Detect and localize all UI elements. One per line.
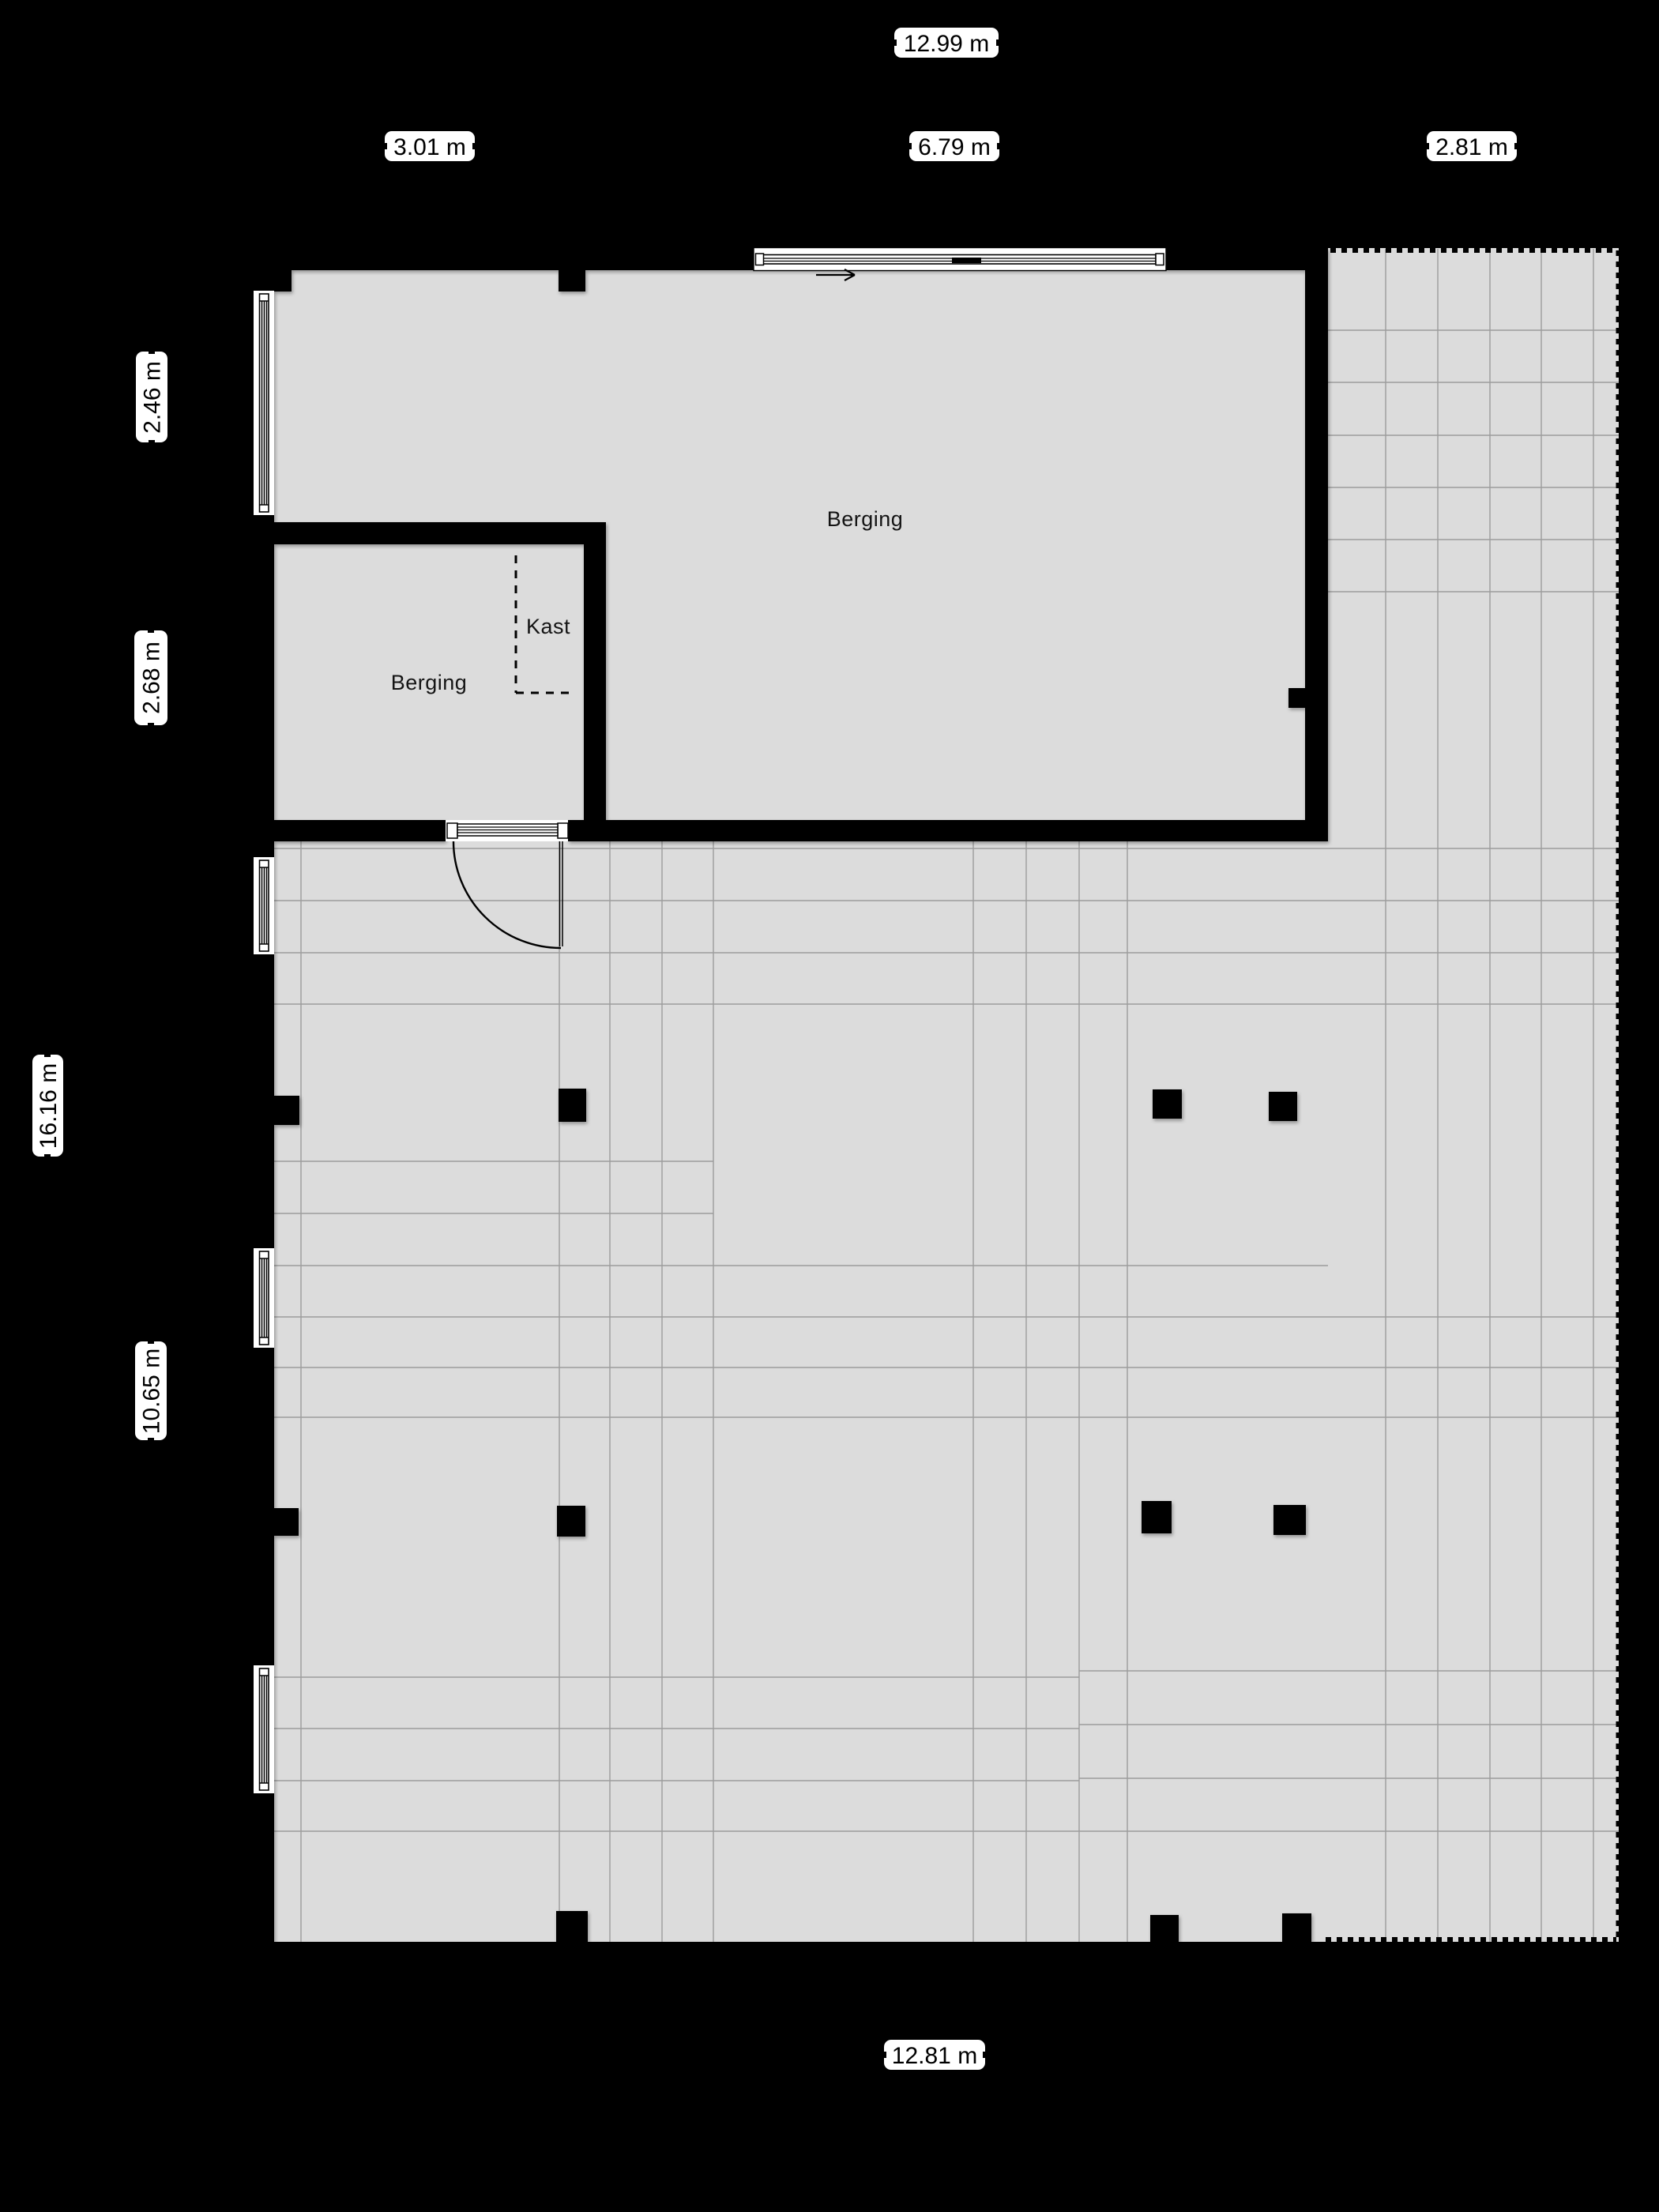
svg-text:Berging: Berging <box>827 507 904 531</box>
svg-text:6.79 m: 6.79 m <box>918 134 991 160</box>
svg-text:3.01 m: 3.01 m <box>393 134 466 160</box>
svg-text:Kast: Kast <box>526 615 570 638</box>
svg-text:10.65 m: 10.65 m <box>139 1349 165 1434</box>
svg-text:2.46 m: 2.46 m <box>140 361 166 434</box>
svg-text:12.99 m: 12.99 m <box>904 31 989 57</box>
svg-text:Berging: Berging <box>391 671 468 694</box>
svg-text:16.16 m: 16.16 m <box>36 1063 62 1149</box>
svg-text:2.81 m: 2.81 m <box>1435 134 1508 160</box>
svg-text:2.68 m: 2.68 m <box>139 641 165 714</box>
svg-text:12.81 m: 12.81 m <box>892 2043 977 2069</box>
